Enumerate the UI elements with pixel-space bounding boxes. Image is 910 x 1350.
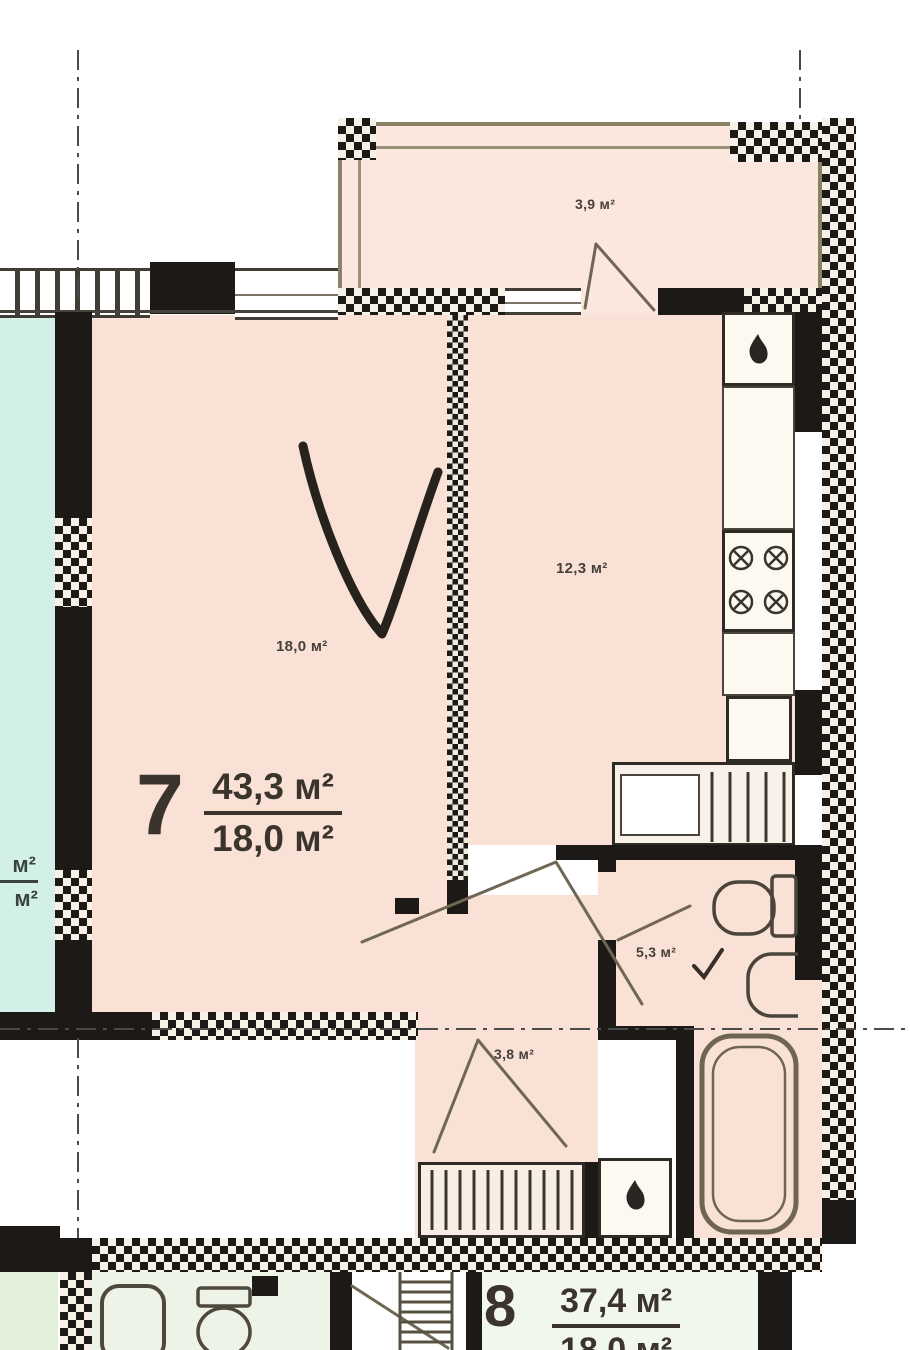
wall-segment: [330, 1272, 352, 1350]
wall-edge-line: [0, 310, 338, 313]
wall-segment: [60, 1238, 92, 1272]
balcony-area-label: 3,9 м²: [575, 196, 615, 212]
apartment8-living-area: 18,0 м²: [552, 1328, 680, 1350]
apartment8-total-area: 37,4 м²: [552, 1282, 680, 1328]
wall-segment: [0, 1012, 152, 1040]
hatched-wall: [55, 518, 92, 607]
room-green-corner: [0, 1272, 58, 1350]
living-area-label: 18,0 м²: [276, 638, 328, 655]
wall-segment: [585, 1162, 598, 1238]
hatched-wall: [55, 870, 92, 940]
stove-box: [722, 530, 795, 632]
vent-shaft-box: [722, 312, 795, 386]
apartment7-total-area: 43,3 м²: [204, 766, 342, 815]
hatched-wall: [338, 288, 505, 315]
hatched-wall: [92, 1238, 822, 1272]
neighbor-living-fragment: м²: [0, 883, 38, 912]
door-jamb: [556, 845, 600, 860]
room-bathroom-8: [92, 1272, 330, 1350]
wall-segment: [55, 607, 92, 870]
room-bathtub-8: [676, 1026, 822, 1238]
hatched-wall: [152, 1012, 418, 1040]
kitchen-counter: [722, 632, 795, 696]
neighbor-total-fragment: м²: [0, 852, 38, 883]
balcony-window: [505, 288, 581, 315]
kitchen-sink-box: [726, 696, 792, 762]
bathroom-area-label: 5,3 м²: [636, 944, 676, 960]
wall-segment: [0, 1226, 60, 1272]
hall-closet: [418, 1162, 585, 1238]
hatched-wall: [60, 1272, 92, 1350]
hatched-wall: [744, 288, 822, 315]
wall-segment: [758, 1272, 792, 1350]
wall-segment: [598, 845, 795, 860]
wall-segment: [447, 880, 468, 914]
kitchen-area-label: 12,3 м²: [556, 560, 608, 577]
hall-area-label: 3,8 м²: [494, 1046, 534, 1062]
wall-segment: [598, 940, 616, 1028]
apartment7-area-fraction: 43,3 м² 18,0 м²: [204, 766, 342, 860]
wall-segment: [150, 262, 235, 314]
outer-wall-right: [822, 118, 856, 1244]
wall-segment: [676, 1026, 694, 1238]
balcony-door-opening: [581, 288, 658, 315]
door-jamb: [395, 898, 419, 914]
wall-segment: [658, 288, 744, 315]
wall-segment: [55, 312, 92, 518]
room-bathroom: [598, 858, 822, 1026]
hatched-wall: [730, 122, 822, 162]
floor-plan: 3,9 м² 12,3 м² 18,0 м² 5,3 м² 3,8 м² 7 4…: [0, 0, 910, 1350]
partition-wall: [447, 315, 468, 880]
neighbor-area-fraction-fragment: м² м²: [0, 852, 38, 912]
wall-segment: [822, 1200, 856, 1244]
vent-shaft-box-2: [598, 1158, 672, 1238]
wall-segment: [795, 690, 822, 775]
wall-segment: [466, 1272, 482, 1350]
room-living-7: [92, 315, 447, 1012]
apartment8-number: 8: [484, 1278, 516, 1336]
wall-segment: [795, 312, 822, 432]
apartment8-area-fraction: 37,4 м² 18,0 м²: [552, 1282, 680, 1350]
apartment7-living-area: 18,0 м²: [204, 815, 342, 860]
appliance-box: [620, 774, 700, 836]
wall-segment: [598, 858, 616, 872]
hatched-wall: [338, 118, 376, 160]
kitchen-cabinet: [722, 386, 795, 530]
wall-segment: [795, 845, 822, 980]
ladder-icon: [400, 1272, 452, 1350]
apartment7-number: 7: [136, 762, 184, 848]
